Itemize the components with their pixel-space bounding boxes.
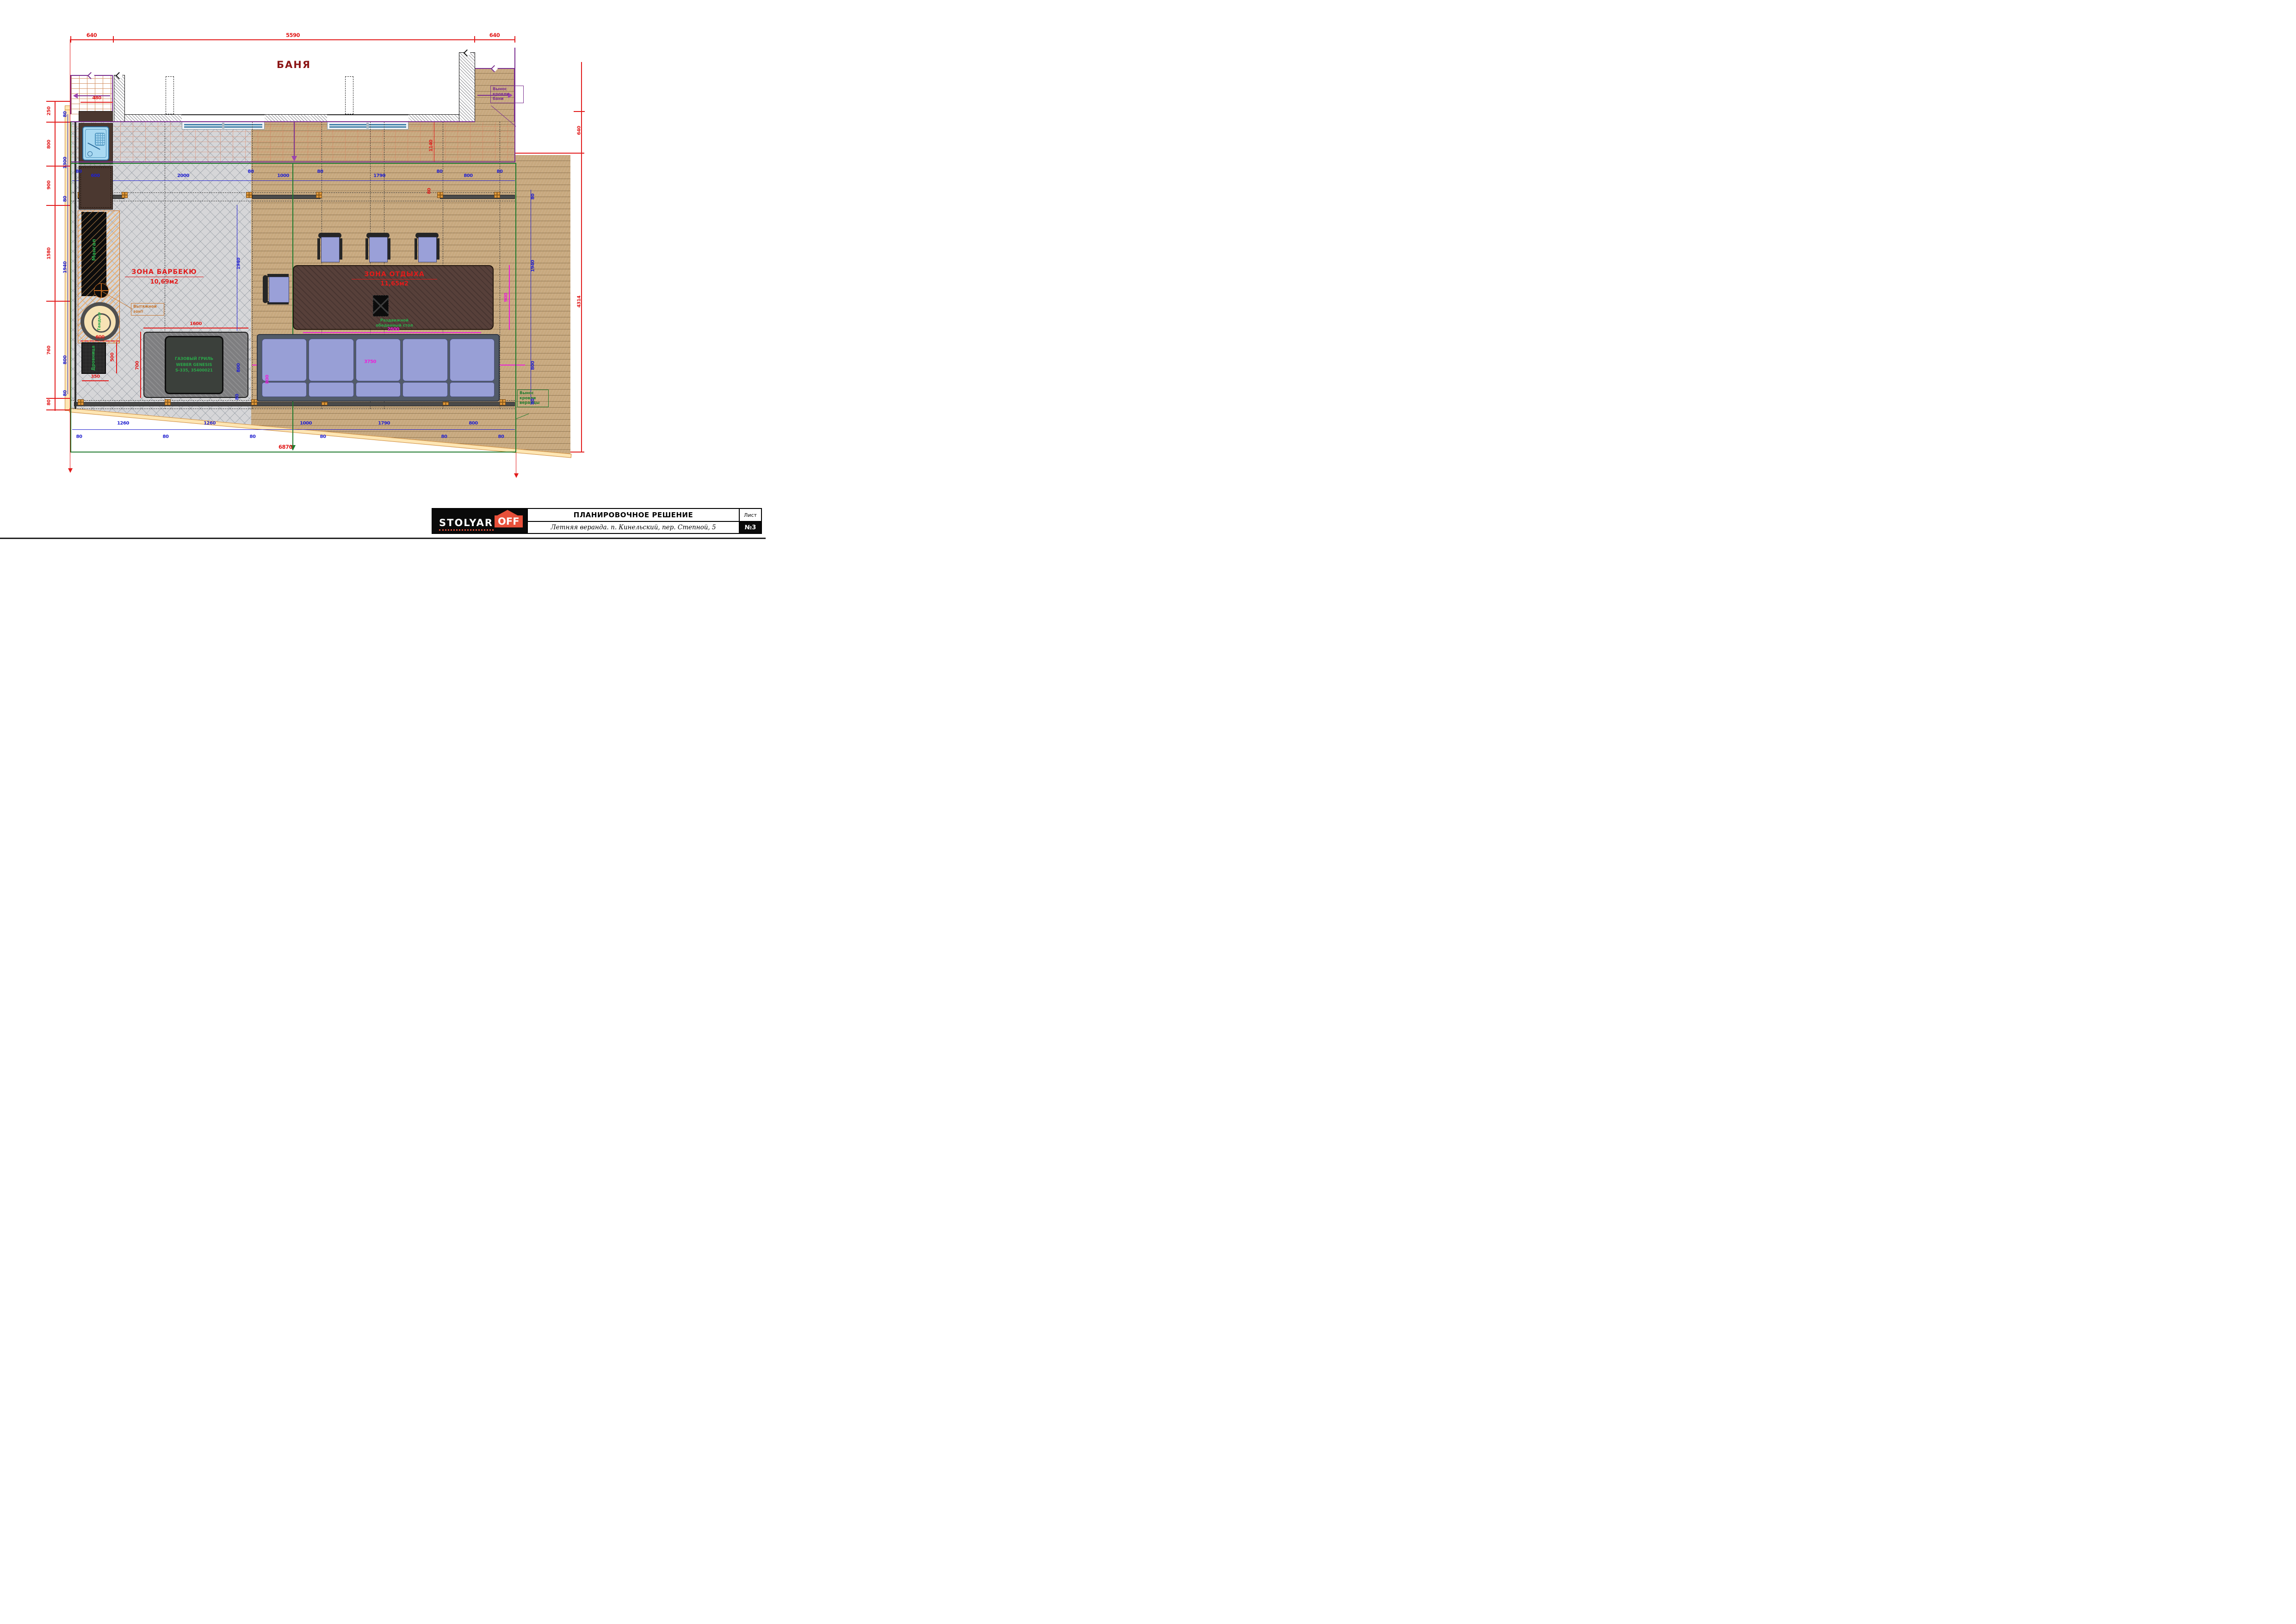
- dim-label: 500: [110, 353, 115, 361]
- dim-line: [70, 39, 515, 40]
- dim-label: 640: [489, 32, 500, 38]
- arrow-down-icon: [68, 468, 73, 473]
- sheet-number: №3: [740, 522, 761, 533]
- zone-rest-name: ЗОНА ОТДЫХА: [352, 271, 437, 279]
- dim-label: 1790: [373, 174, 385, 179]
- dim-line: [68, 114, 68, 394]
- dim-line: [82, 380, 109, 381]
- timber-post: [316, 192, 322, 198]
- bath-roofline: [70, 121, 475, 122]
- hood-note: Вытяжной зонт: [131, 303, 164, 316]
- timber-post: [494, 192, 500, 198]
- dim-label: 2000: [177, 174, 189, 179]
- logo-text-accent: OFF: [495, 515, 523, 527]
- floor-plan: БАНЯ: [0, 0, 766, 541]
- arrow-down-icon: [291, 156, 297, 161]
- dim-label: 600: [91, 174, 99, 179]
- chair: [365, 233, 390, 261]
- bath-wall-segment: [125, 114, 182, 122]
- stolyaroff-logo: STOLYAR OFF: [433, 509, 527, 533]
- dim-label: 80: [531, 399, 536, 405]
- timber-post: [246, 192, 252, 198]
- dim-line: [581, 62, 582, 452]
- guide-line: [500, 122, 500, 409]
- timber-post: [122, 192, 128, 198]
- dim-label: 900: [47, 180, 52, 189]
- page-frame-bottom: [0, 538, 766, 539]
- dim-tick: [46, 398, 70, 399]
- bath-label: БАНЯ: [259, 59, 328, 70]
- column-outline-dashed: [166, 76, 174, 114]
- logo-underline: [439, 529, 494, 531]
- timber-post: [251, 399, 257, 405]
- dim-label: 800: [464, 174, 472, 179]
- bath-wall-segment: [265, 114, 327, 122]
- dim-label: 640: [577, 126, 582, 135]
- dim-label: 640: [87, 32, 97, 38]
- zone-bbq-area: 10,69м2: [125, 279, 204, 285]
- dim-line: [72, 429, 515, 430]
- dim-label: 800: [47, 140, 52, 149]
- dim-line: [72, 180, 515, 181]
- timber-post: [78, 399, 84, 405]
- sofa: [257, 334, 500, 402]
- timber-post: [165, 399, 171, 405]
- drawing-title: ПЛАНИРОВОЧНОЕ РЕШЕНИЕ: [528, 509, 739, 522]
- zone-rest-label: ЗОНА ОТДЫХА 11,65м2: [352, 271, 437, 287]
- mangal-label: Мангал: [91, 239, 97, 260]
- logo-roof-icon: [497, 510, 518, 515]
- veranda-roof-line-right: [515, 163, 516, 452]
- dim-tick: [574, 111, 585, 112]
- bath-window-sill: [327, 122, 408, 130]
- beam: [252, 195, 321, 199]
- guide-line: [252, 122, 253, 409]
- dim-tick: [46, 409, 70, 410]
- veranda-roof-line-bottom: [70, 452, 516, 452]
- timber-post: [437, 192, 443, 198]
- zone-rest-area: 11,65м2: [352, 280, 437, 287]
- dim-tick: [113, 36, 114, 43]
- dim-label: 5590: [286, 32, 300, 38]
- dim-label: 80: [63, 112, 68, 118]
- dim-label: 800: [469, 421, 477, 426]
- dim-tick: [46, 122, 70, 123]
- dim-line: [303, 332, 481, 333]
- bath-side-wall-right: [459, 52, 475, 122]
- beam: [74, 402, 515, 406]
- dim-label: 760: [47, 346, 52, 354]
- sink-knob: [87, 151, 93, 156]
- chair: [415, 233, 439, 261]
- dim-label: 2600: [387, 327, 399, 332]
- veranda-roof-line-left: [70, 122, 71, 452]
- dim-label: 1940: [236, 258, 241, 270]
- beam: [440, 195, 515, 199]
- timber-post: [500, 399, 506, 405]
- dim-label: 800: [236, 363, 241, 372]
- dim-tick: [46, 301, 70, 302]
- drawing-page: БАНЯ: [0, 0, 766, 541]
- dim-label: 80: [531, 194, 536, 200]
- dim-label: 80: [76, 169, 82, 174]
- veranda-roof-line-top: [70, 163, 516, 164]
- chair: [317, 233, 342, 261]
- dim-label: 1300: [63, 157, 68, 169]
- dim-tick: [46, 205, 70, 206]
- dim-line: [116, 342, 117, 373]
- dim-line: [434, 122, 434, 162]
- dim-label: 80: [250, 434, 256, 440]
- gas-grill: ГАЗОВЫЙ ГРИЛЬ WEBER GENESIS S-335, 35400…: [165, 336, 223, 394]
- dim-label: 80: [63, 196, 68, 202]
- bath-roof-note: Вынос кровли бани: [490, 86, 524, 103]
- title-block-middle: ПЛАНИРОВОЧНОЕ РЕШЕНИЕ Летняя веранда. п.…: [527, 509, 740, 533]
- dim-line: [140, 332, 141, 398]
- kitchen-sink: [82, 126, 109, 161]
- dim-label: 1000: [277, 174, 289, 179]
- dim-label: 1940: [63, 261, 68, 273]
- dim-label: 700: [135, 361, 140, 370]
- dim-label: 80: [497, 169, 503, 174]
- title-block-sheet: Лист №3: [740, 509, 761, 533]
- bath-roof-axis-line: [294, 122, 295, 158]
- bath-roof-overhang-line: [70, 161, 515, 162]
- dim-label: 6870: [278, 444, 292, 450]
- lower-cabinet: [79, 166, 113, 210]
- dim-tick: [474, 36, 475, 43]
- dim-line: [143, 328, 248, 329]
- dim-label: 80: [441, 434, 447, 440]
- dim-label: 80: [317, 169, 323, 174]
- logo-text-main: STOLYAR: [439, 517, 493, 528]
- dim-guide: [516, 452, 516, 475]
- dim-label: 80: [248, 169, 254, 174]
- dim-label: 3750: [364, 360, 376, 365]
- column-outline-dashed: [345, 76, 353, 114]
- dim-label: 600: [95, 335, 104, 340]
- dim-label: 80: [235, 394, 240, 400]
- bath-side-wall-left: [114, 75, 125, 122]
- dim-label: 80: [320, 434, 326, 440]
- dim-line: [515, 153, 584, 154]
- left-wall-line: [74, 122, 76, 409]
- dim-label: 80: [427, 188, 432, 194]
- dim-line: [55, 101, 56, 411]
- dim-label: 1790: [378, 421, 390, 426]
- chimney-circle: [94, 283, 109, 298]
- dim-label: 1260: [204, 421, 216, 426]
- dim-line: [570, 452, 584, 452]
- dim-label: 1140: [429, 140, 434, 152]
- bath-wall-segment: [408, 114, 459, 122]
- arrow-left-icon: [73, 93, 78, 99]
- dim-line: [509, 265, 510, 330]
- zone-bbq-name: ЗОНА БАРБЕКЮ: [125, 268, 204, 277]
- dim-label: 80: [63, 391, 68, 397]
- dim-label: 800: [63, 355, 68, 364]
- arrow-down-icon: [514, 473, 519, 478]
- dim-label: 900: [504, 293, 509, 302]
- firewood-label: Дровница: [91, 346, 96, 371]
- dim-label: 1600: [190, 322, 202, 327]
- counter-top-cabinet: [79, 111, 113, 122]
- dim-label: 800: [265, 375, 270, 384]
- dim-label: 800: [531, 361, 536, 370]
- dim-label: 80: [76, 434, 82, 440]
- dim-label: 4314: [577, 296, 582, 308]
- bath-roof-overhang-line-right: [514, 48, 515, 162]
- dim-line: [531, 190, 531, 405]
- sink-cabinet: [79, 123, 113, 164]
- dim-label: 350: [91, 374, 99, 379]
- dim-label: 80: [498, 434, 504, 440]
- drawing-subtitle: Летняя веранда. п. Кинельский, пер. Степ…: [528, 522, 739, 533]
- zone-bbq-label: ЗОНА БАРБЕКЮ 10,69м2: [125, 268, 204, 285]
- gas-grill-label: ГАЗОВЫЙ ГРИЛЬ WEBER GENESIS S-335, 35400…: [175, 356, 213, 374]
- dim-tick: [46, 101, 70, 102]
- tandyr-label: Тандыр: [97, 312, 102, 331]
- table-insert: [373, 295, 389, 316]
- sink-drain-grid: [95, 133, 105, 146]
- sheet-label: Лист: [740, 509, 761, 522]
- dim-label: 1940: [531, 260, 536, 272]
- dim-label: 80: [47, 400, 52, 406]
- dim-tick: [514, 36, 515, 43]
- dim-label: 1580: [47, 248, 52, 260]
- dim-line: [80, 102, 113, 103]
- title-block: STOLYAR OFF ПЛАНИРОВОЧНОЕ РЕШЕНИЕ Летняя…: [432, 508, 762, 534]
- dim-tick: [70, 36, 71, 43]
- dim-label: 1260: [117, 421, 129, 426]
- dim-label: 1000: [300, 421, 312, 426]
- dim-label: 80: [163, 434, 169, 440]
- chair-side: [263, 274, 290, 304]
- dim-label: 80: [437, 169, 443, 174]
- dim-label: 250: [47, 106, 52, 115]
- dim-label: 480: [92, 96, 101, 101]
